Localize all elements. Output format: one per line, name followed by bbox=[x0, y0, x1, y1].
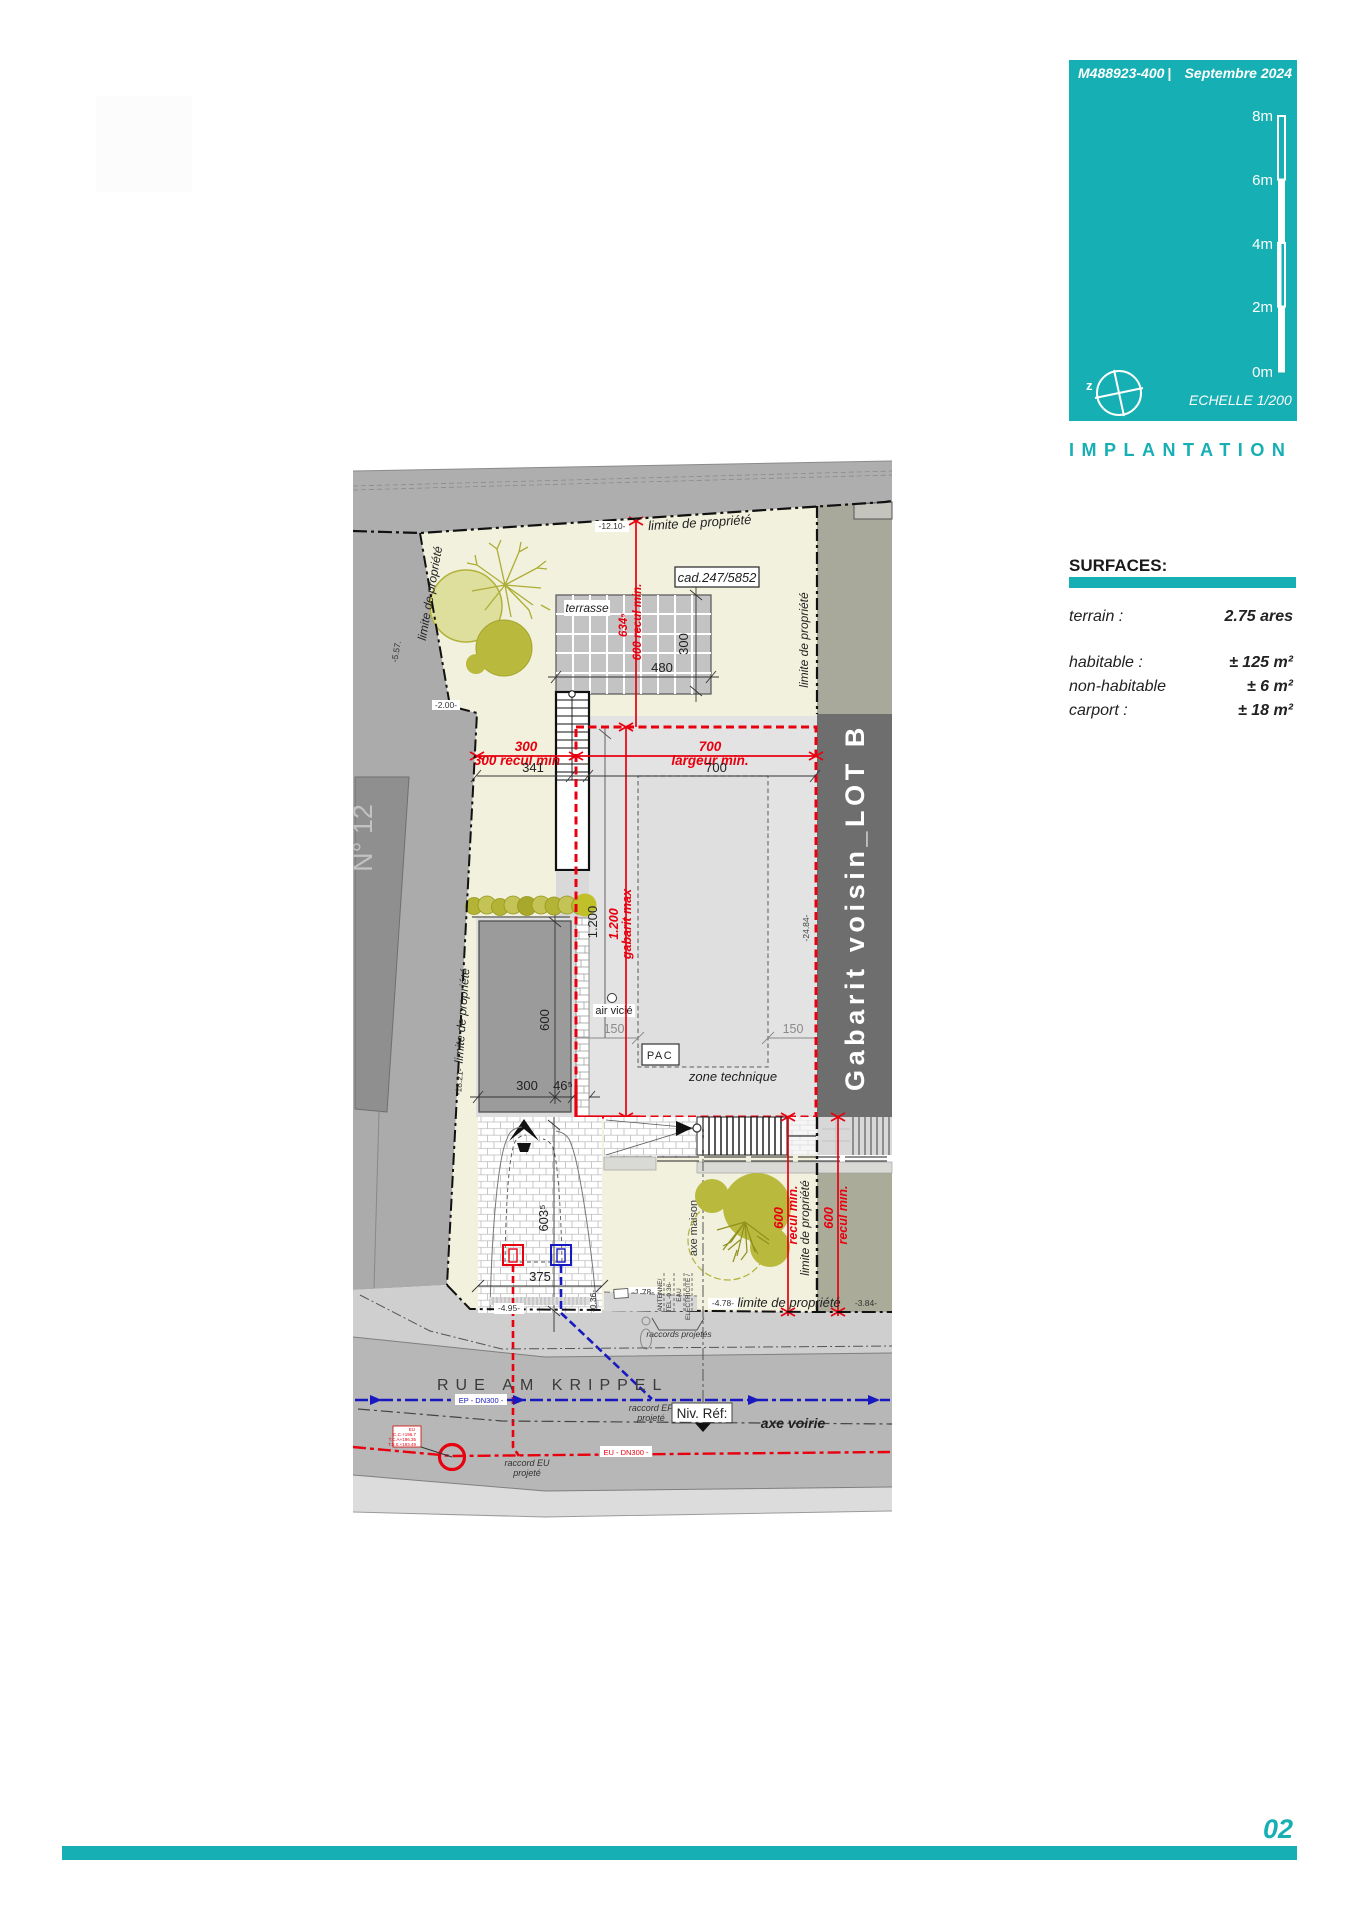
svg-text:ECHELLE 1/200: ECHELLE 1/200 bbox=[1189, 392, 1292, 408]
svg-text:recul min.: recul min. bbox=[836, 1185, 850, 1244]
svg-text:air vicié: air vicié bbox=[595, 1005, 632, 1017]
svg-text:46⁵: 46⁵ bbox=[553, 1078, 573, 1093]
svg-text:600 recul min.: 600 recul min. bbox=[632, 584, 644, 661]
svg-text:6m: 6m bbox=[1252, 172, 1273, 189]
svg-text:-3.84-: -3.84- bbox=[855, 1298, 877, 1308]
svg-text:150: 150 bbox=[783, 1022, 804, 1036]
svg-text:raccord EU: raccord EU bbox=[504, 1458, 550, 1468]
svg-text:8m: 8m bbox=[1252, 108, 1273, 125]
svg-text:T.S.0.+193.49: T.S.0.+193.49 bbox=[388, 1442, 416, 1447]
svg-text:341: 341 bbox=[522, 760, 544, 775]
svg-text:axe voirie: axe voirie bbox=[761, 1415, 826, 1431]
svg-text:150: 150 bbox=[604, 1022, 625, 1036]
svg-text:300 recul min: 300 recul min bbox=[474, 753, 560, 768]
svg-text:603⁵: 603⁵ bbox=[536, 1204, 551, 1231]
svg-text:projeté: projeté bbox=[512, 1468, 541, 1478]
svg-text:-0.36-: -0.36- bbox=[588, 1290, 598, 1312]
svg-text:limite de propriété: limite de propriété bbox=[798, 1180, 812, 1276]
svg-text:600: 600 bbox=[537, 1009, 552, 1031]
svg-text:300: 300 bbox=[516, 1078, 538, 1093]
svg-text:1.200: 1.200 bbox=[585, 906, 600, 939]
svg-text:1.200: 1.200 bbox=[607, 908, 621, 939]
svg-text:RUE AM KRIPPEL: RUE AM KRIPPEL bbox=[437, 1377, 668, 1394]
svg-text:axe maison: axe maison bbox=[688, 1200, 700, 1256]
svg-text:300: 300 bbox=[515, 739, 538, 754]
svg-text:ANTENNE/: ANTENNE/ bbox=[657, 1278, 664, 1311]
svg-text:375: 375 bbox=[529, 1269, 551, 1284]
svg-text:600: 600 bbox=[771, 1206, 786, 1228]
svg-text:-12.10-: -12.10- bbox=[599, 521, 626, 531]
svg-text:EU - DN300 -: EU - DN300 - bbox=[603, 1448, 649, 1457]
svg-text:480: 480 bbox=[651, 660, 673, 675]
svg-text:gabarit max: gabarit max bbox=[620, 888, 634, 960]
svg-text:Niv. Réf:: Niv. Réf: bbox=[677, 1406, 728, 1421]
svg-text:700: 700 bbox=[705, 760, 727, 775]
svg-text:600: 600 bbox=[821, 1206, 836, 1228]
svg-text:0m: 0m bbox=[1252, 364, 1273, 381]
svg-text:-4.78-: -4.78- bbox=[712, 1298, 734, 1308]
svg-text:-18.21-: -18.21- bbox=[453, 1068, 465, 1096]
svg-text:300: 300 bbox=[676, 633, 691, 655]
svg-text:limite de propriété: limite de propriété bbox=[797, 592, 811, 688]
svg-text:-4.95-: -4.95- bbox=[498, 1303, 520, 1313]
svg-text:limite de propriété: limite de propriété bbox=[737, 1295, 840, 1310]
svg-text:TEL -0.36-: TEL -0.36- bbox=[666, 1282, 673, 1312]
svg-text:ELECTRICITE /: ELECTRICITE / bbox=[685, 1274, 692, 1320]
svg-text:raccords projetés: raccords projetés bbox=[646, 1329, 712, 1339]
svg-text:PAC: PAC bbox=[647, 1050, 673, 1062]
svg-text:700: 700 bbox=[699, 739, 722, 754]
svg-text:EAU: EAU bbox=[676, 1288, 683, 1302]
svg-text:-24.84-: -24.84- bbox=[801, 914, 811, 941]
svg-text:-2.00-: -2.00- bbox=[435, 700, 457, 710]
svg-text:Gabarit voisin_LOT B: Gabarit voisin_LOT B bbox=[840, 723, 870, 1091]
svg-text:z: z bbox=[1086, 378, 1093, 393]
svg-text:N° 12: N° 12 bbox=[348, 804, 378, 872]
svg-text:terrasse: terrasse bbox=[565, 601, 609, 615]
svg-text:2m: 2m bbox=[1252, 299, 1273, 316]
svg-text:EP - DN300 -: EP - DN300 - bbox=[459, 1396, 504, 1405]
svg-text:zone technique: zone technique bbox=[688, 1069, 777, 1084]
svg-text:raccord EP: raccord EP bbox=[629, 1403, 674, 1413]
svg-text:cad.247/5852: cad.247/5852 bbox=[678, 570, 758, 585]
svg-text:4m: 4m bbox=[1252, 236, 1273, 253]
svg-text:634⁵: 634⁵ bbox=[618, 613, 630, 637]
